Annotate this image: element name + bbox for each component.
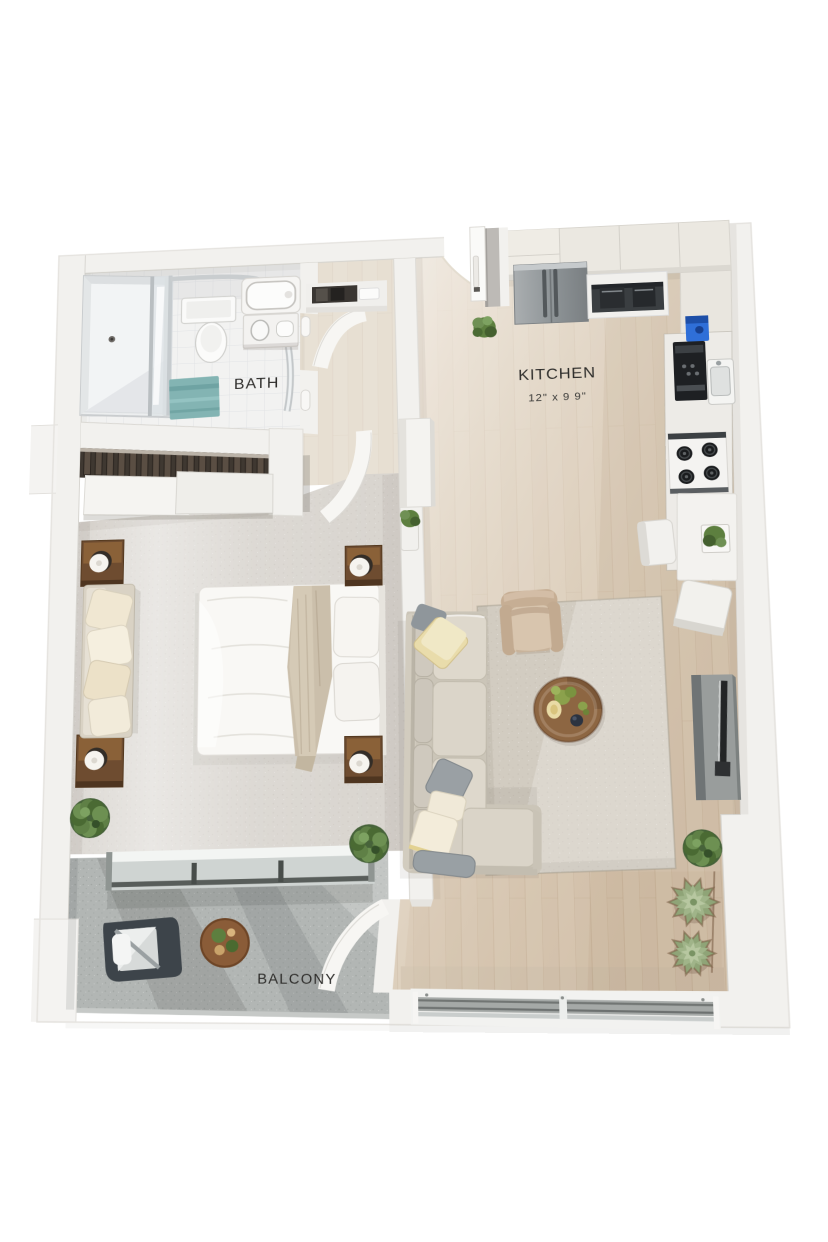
svg-text:BATH: BATH	[234, 375, 280, 393]
svg-text:KITCHEN: KITCHEN	[518, 365, 596, 385]
svg-text:BALCONY: BALCONY	[257, 971, 336, 988]
svg-text:12" x 9 9": 12" x 9 9"	[528, 391, 587, 405]
